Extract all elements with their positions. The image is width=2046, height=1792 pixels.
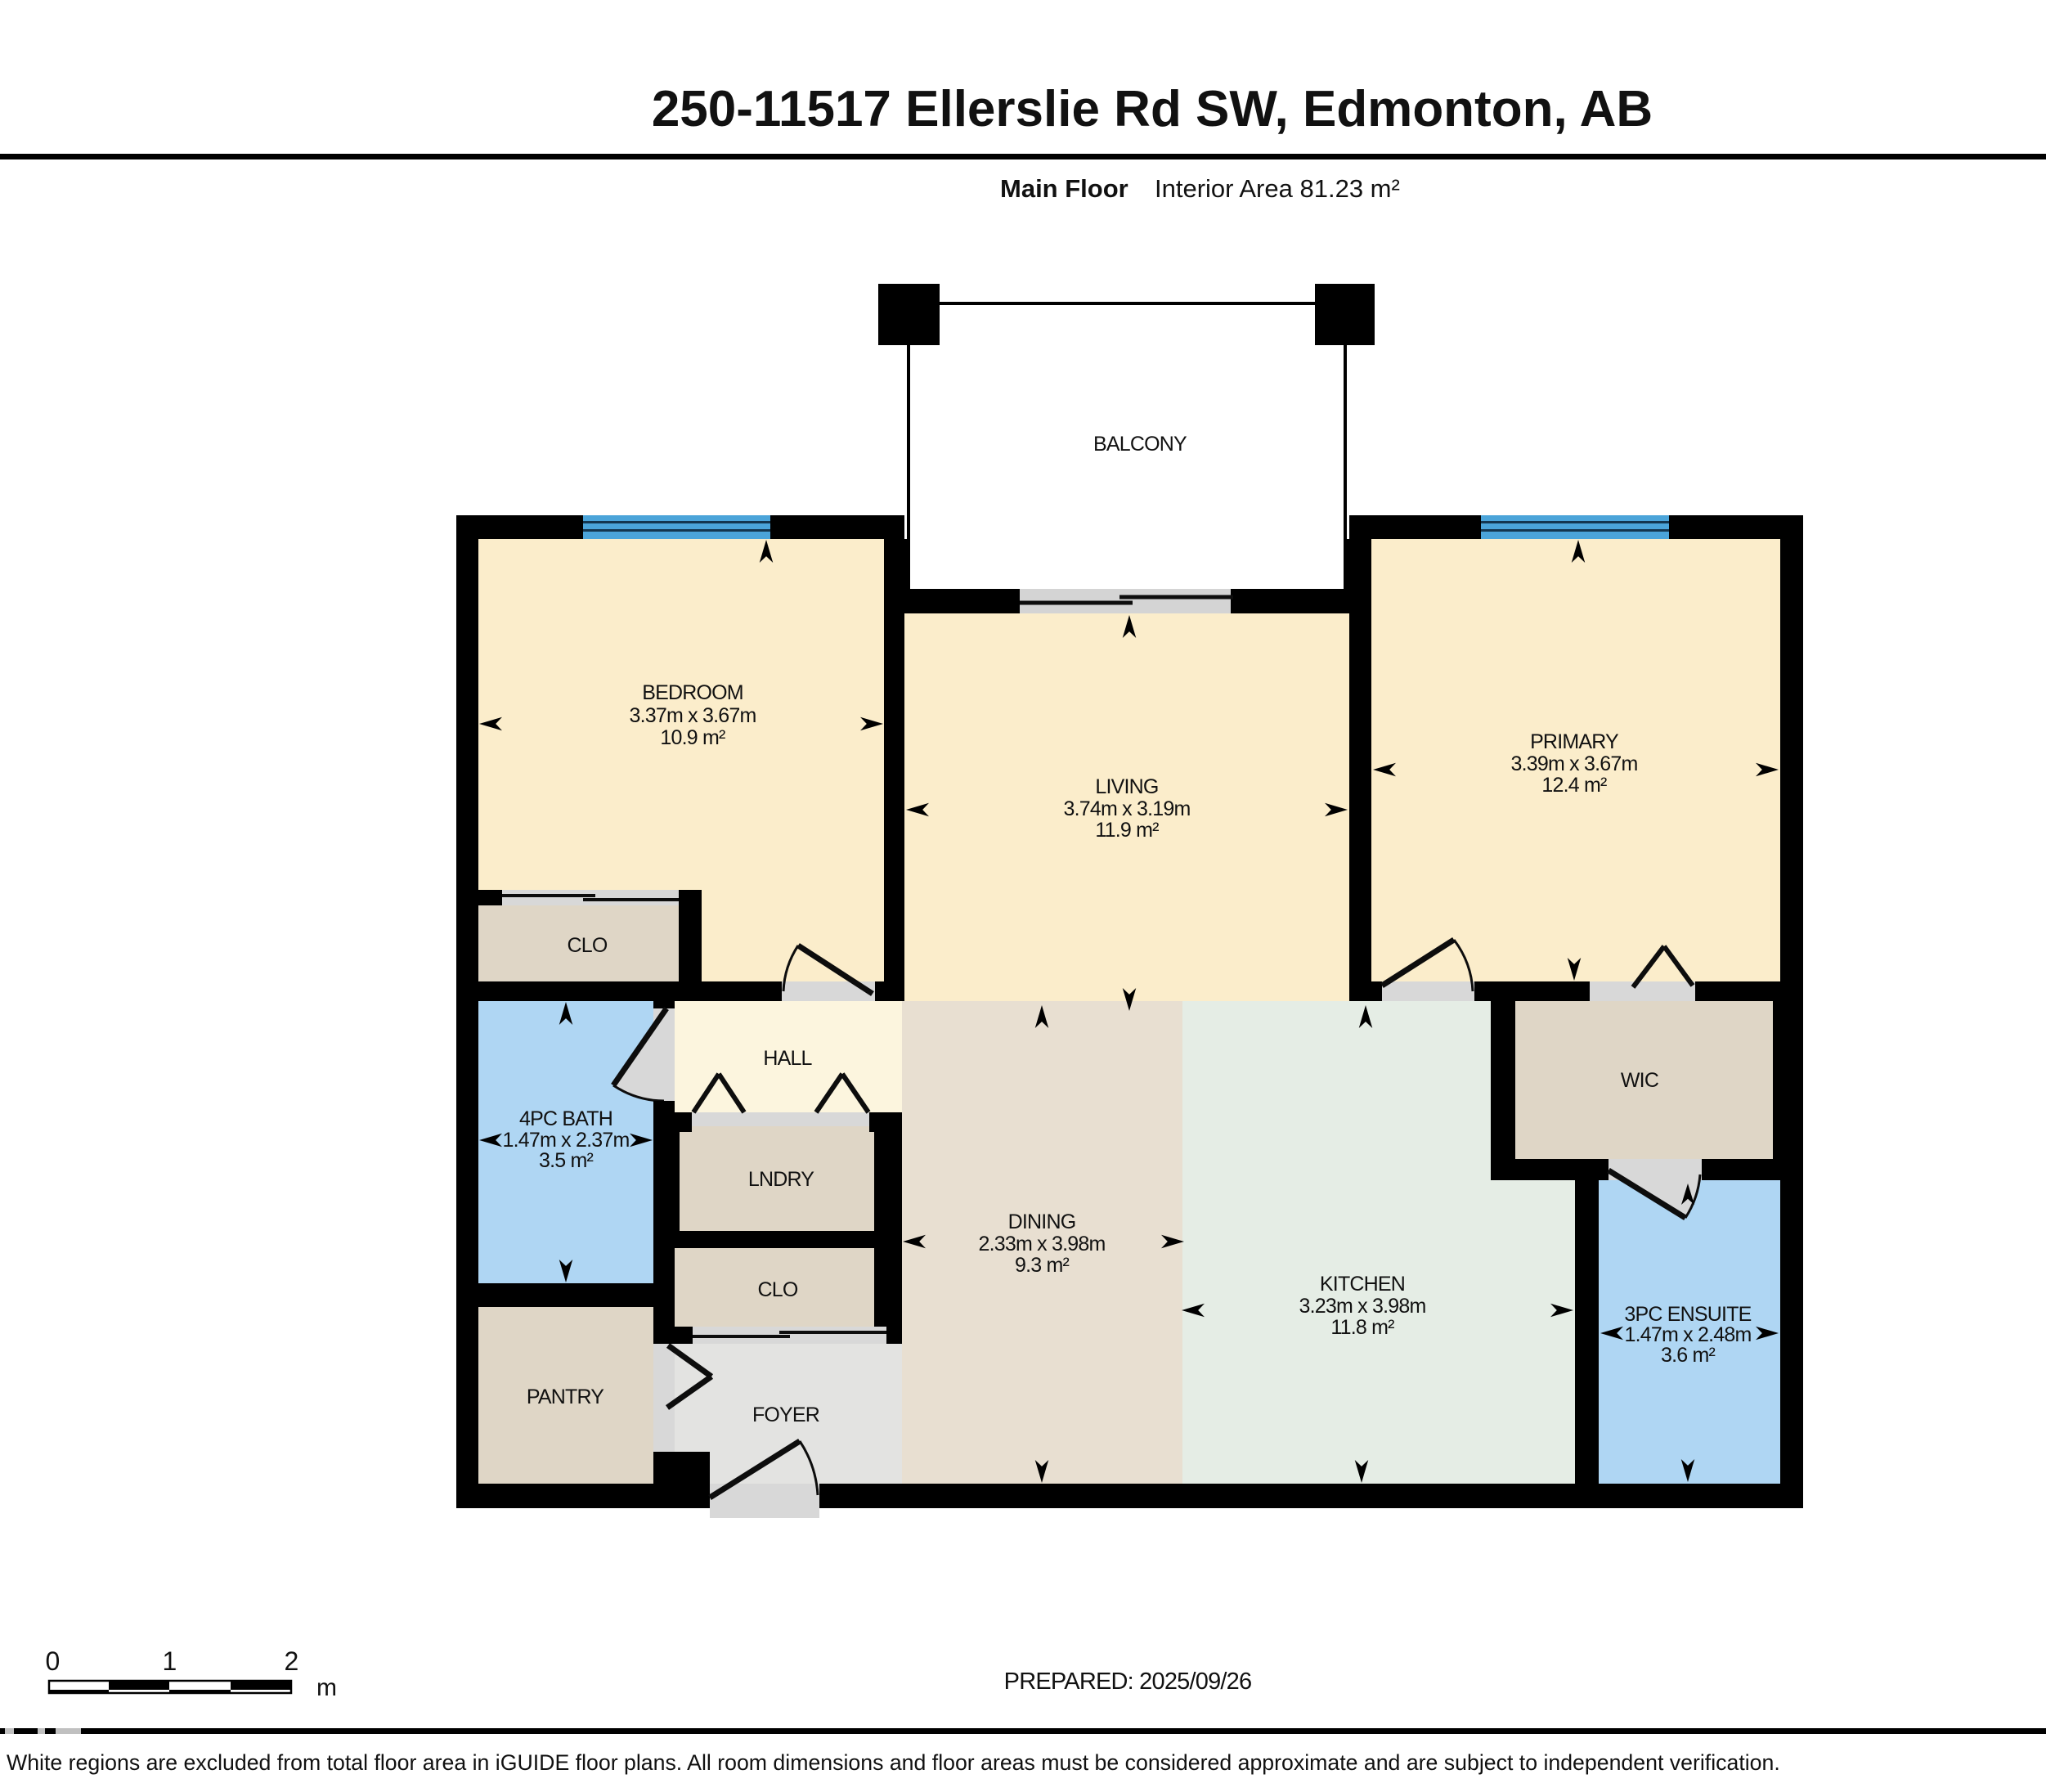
svg-text:250-11517 Ellerslie Rd SW, Edm: 250-11517 Ellerslie Rd SW, Edmonton, AB [652, 81, 1653, 137]
svg-text:3.74m x 3.19m: 3.74m x 3.19m [1064, 797, 1191, 820]
svg-text:10.9 m²: 10.9 m² [660, 726, 725, 749]
svg-text:HALL: HALL [763, 1047, 812, 1070]
svg-text:KITCHEN: KITCHEN [1320, 1273, 1405, 1296]
svg-text:3PC ENSUITE: 3PC ENSUITE [1624, 1303, 1751, 1326]
svg-text:0: 0 [46, 1646, 60, 1676]
svg-text:9.3 m²: 9.3 m² [1015, 1254, 1070, 1277]
svg-text:PRIMARY: PRIMARY [1530, 730, 1619, 753]
svg-text:1: 1 [163, 1646, 177, 1676]
svg-text:PANTRY: PANTRY [527, 1386, 604, 1408]
svg-text:CLO: CLO [567, 934, 607, 957]
svg-text:3.37m x 3.67m: 3.37m x 3.67m [630, 704, 756, 727]
svg-text:CLO: CLO [757, 1278, 797, 1301]
svg-text:3.39m x 3.67m: 3.39m x 3.67m [1511, 752, 1638, 775]
svg-text:Main FloorInterior Area 81.23: Main FloorInterior Area 81.23 m² [1000, 174, 1400, 203]
svg-text:11.9 m²: 11.9 m² [1095, 819, 1159, 842]
svg-text:2: 2 [285, 1646, 298, 1676]
svg-text:11.8 m²: 11.8 m² [1330, 1316, 1394, 1339]
svg-text:1.47m x 2.48m: 1.47m x 2.48m [1625, 1323, 1752, 1346]
svg-text:PREPARED: 2025/09/26: PREPARED: 2025/09/26 [1004, 1668, 1252, 1695]
svg-text:3.23m x 3.98m: 3.23m x 3.98m [1299, 1295, 1426, 1318]
svg-text:White regions are excluded fro: White regions are excluded from total fl… [7, 1750, 1780, 1775]
svg-text:3.6 m²: 3.6 m² [1661, 1344, 1716, 1367]
svg-text:12.4 m²: 12.4 m² [1541, 774, 1607, 797]
svg-text:2.33m x 3.98m: 2.33m x 3.98m [979, 1233, 1106, 1255]
svg-text:BEDROOM: BEDROOM [642, 681, 743, 704]
svg-text:DINING: DINING [1008, 1210, 1076, 1233]
svg-text:WIC: WIC [1621, 1069, 1659, 1092]
svg-text:4PC BATH: 4PC BATH [519, 1107, 612, 1130]
svg-text:3.5 m²: 3.5 m² [539, 1149, 594, 1172]
svg-text:m: m [316, 1674, 336, 1701]
svg-text:LNDRY: LNDRY [748, 1168, 814, 1191]
svg-text:LIVING: LIVING [1095, 775, 1158, 798]
svg-text:1.47m x 2.37m: 1.47m x 2.37m [503, 1129, 630, 1152]
svg-text:BALCONY: BALCONY [1093, 433, 1187, 456]
svg-text:FOYER: FOYER [752, 1404, 819, 1426]
